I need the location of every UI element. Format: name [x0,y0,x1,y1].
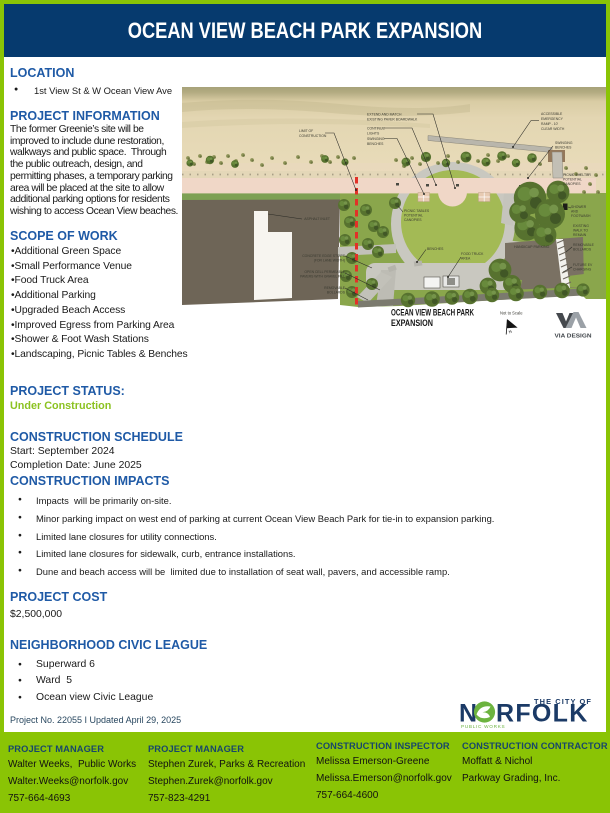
svg-text:CANOPIES: CANOPIES [404,218,422,222]
svg-text:POTENTIAL: POTENTIAL [404,214,423,218]
svg-text:CONSTRUCTION: CONSTRUCTION [299,134,327,138]
svg-text:Not to Scale: Not to Scale [500,311,523,316]
svg-text:OCEAN VIEW BEACH PARK: OCEAN VIEW BEACH PARK [391,308,474,318]
svg-text:PICNIC SHELTER: PICNIC SHELTER [563,173,591,177]
svg-text:CONTINUE: CONTINUE [367,127,385,131]
svg-text:EMERGENCY: EMERGENCY [541,117,564,121]
svg-text:N: N [508,329,513,335]
svg-text:SWINGING: SWINGING [555,141,573,145]
svg-text:REMOVABLE: REMOVABLE [573,243,595,247]
svg-text:RFOLK: RFOLK [496,700,589,728]
svg-text:BENCHES: BENCHES [367,142,384,146]
svg-text:(FOR LANE WIDTH): (FOR LANE WIDTH) [314,259,345,263]
svg-text:PAVERS WITH GRAVEL FILL: PAVERS WITH GRAVEL FILL [300,275,345,279]
svg-text:CANOPIES: CANOPIES [563,182,581,186]
svg-text:FUTURE EV: FUTURE EV [573,263,593,267]
svg-text:AREA: AREA [461,257,471,261]
svg-text:EXPANSION: EXPANSION [391,318,433,328]
svg-text:EXTEND AND MATCH: EXTEND AND MATCH [367,113,402,117]
svg-text:CONCRETE EDGE STRIPS: CONCRETE EDGE STRIPS [302,254,346,258]
svg-text:BOLLARDS: BOLLARDS [573,248,592,252]
svg-text:REMOVABLE: REMOVABLE [324,286,346,290]
svg-text:SHOWER: SHOWER [571,205,587,209]
svg-text:ACCESSIBLE: ACCESSIBLE [541,112,563,116]
svg-text:PUBLIC WORKS: PUBLIC WORKS [461,724,505,729]
svg-text:BOLLARDS: BOLLARDS [327,291,346,295]
svg-text:FOOD TRUCK: FOOD TRUCK [461,252,484,256]
svg-text:AND: AND [571,210,579,214]
svg-text:CHARGING: CHARGING [573,268,592,272]
svg-text:RAMP - 10': RAMP - 10' [541,122,559,126]
svg-text:SWINGING: SWINGING [367,137,385,141]
svg-text:PICNIC TABLES: PICNIC TABLES [404,209,430,213]
svg-text:LIMIT OF: LIMIT OF [299,129,313,133]
svg-text:WALK TO: WALK TO [573,229,588,233]
svg-text:EXISTING: EXISTING [573,224,589,228]
svg-text:FOOTWASH: FOOTWASH [571,214,591,218]
svg-text:POTENTIAL: POTENTIAL [563,178,582,182]
svg-text:ASPHALT INLET: ASPHALT INLET [304,217,330,221]
svg-text:LIGHTS: LIGHTS [367,132,380,136]
svg-text:REMAIN: REMAIN [573,233,587,237]
svg-text:BENCHES: BENCHES [427,247,444,251]
svg-text:OPEN CELL PERMEABLE: OPEN CELL PERMEABLE [304,270,345,274]
svg-text:BENCHES: BENCHES [555,146,572,150]
svg-text:EXISTING PAVER BOARDWALK: EXISTING PAVER BOARDWALK [367,118,418,122]
svg-text:HANDICAP PARKING: HANDICAP PARKING [514,245,550,249]
svg-text:CLEAR WIDTH: CLEAR WIDTH [541,127,565,131]
svg-text:VIA DESIGN: VIA DESIGN [555,333,592,339]
